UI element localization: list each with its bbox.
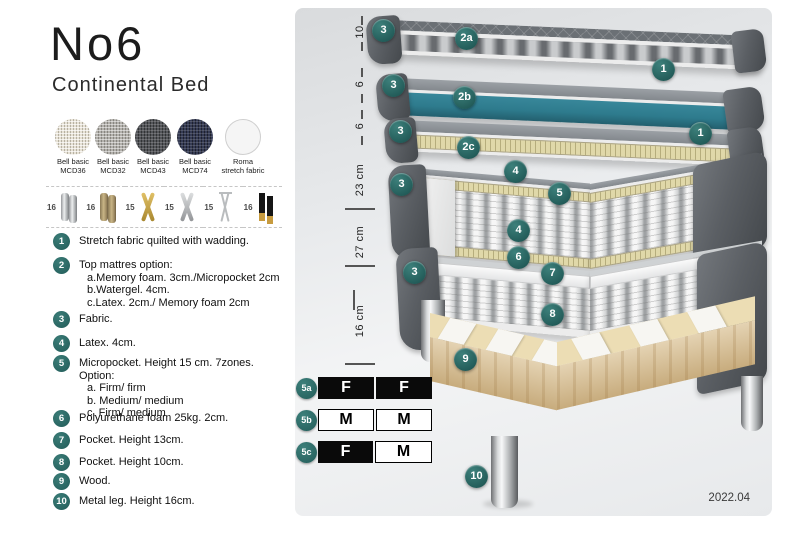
callout-5: 5: [548, 182, 571, 205]
ruler-line: [345, 208, 375, 210]
firmness-cell: M: [318, 409, 374, 431]
feature-item-10: 10 Metal leg. Height 16cm.: [53, 493, 291, 510]
callout-7: 7: [541, 262, 564, 285]
firmness-row-5c: F M: [318, 441, 432, 463]
exploded-bed-diagram: 10 6 6 23 cm 27 cm 16 cm: [295, 8, 772, 516]
feature-text: Stretch fabric quilted with wadding.: [79, 233, 249, 248]
product-subtitle: Continental Bed: [52, 74, 209, 97]
firmness-cell: M: [375, 441, 432, 463]
dimension-label-27cm: 27 cm: [354, 212, 366, 272]
feature-text: Pocket. Height 10cm.: [79, 454, 184, 469]
callout-3: 3: [372, 19, 395, 42]
leg-options-row: 16 16 15 15 15 16: [46, 186, 282, 228]
feature-number-badge: 8: [53, 454, 70, 471]
firmness-row-5a: F F: [318, 377, 432, 399]
callout-3: 3: [403, 261, 426, 284]
feature-number-badge: 2: [53, 257, 70, 274]
feature-number-badge: 6: [53, 410, 70, 427]
feature-number-badge: 9: [53, 473, 70, 490]
ruler-line: [345, 363, 375, 365]
firmness-cell: F: [376, 377, 432, 399]
callout-9: 9: [454, 348, 477, 371]
callout-4: 4: [507, 219, 530, 242]
callout-2b: 2b: [453, 86, 476, 109]
feature-text: Polyurethane foam 25kg. 2cm.: [79, 410, 228, 425]
feature-text: Fabric.: [79, 311, 113, 326]
feature-item-4: 4 Latex. 4cm.: [53, 335, 291, 352]
black-gold-tip-legs-icon: [255, 191, 277, 223]
leg-option-chrome: 16: [46, 186, 85, 228]
leg-option-gold-cross: 15: [125, 186, 164, 228]
feature-item-7: 7 Pocket. Height 13cm.: [53, 432, 291, 449]
dimension-label-16cm: 16 cm: [354, 291, 366, 351]
feature-text: Wood.: [79, 473, 111, 488]
feature-number-badge: 10: [53, 493, 70, 510]
feature-item-9: 9 Wood.: [53, 473, 291, 490]
firmness-badge-5c: 5c: [296, 442, 317, 463]
feature-number-badge: 4: [53, 335, 70, 352]
firmness-cell: F: [318, 377, 374, 399]
feature-number-badge: 1: [53, 233, 70, 250]
feature-number-badge: 5: [53, 355, 70, 372]
fabric-swatch-label: Bell basicMCD74: [169, 158, 221, 175]
silver-cross-legs-icon: [176, 191, 198, 223]
fabric-swatch-label: Romastretch fabric: [217, 158, 269, 175]
dimension-label-23cm: 23 cm: [354, 150, 366, 210]
ruler-tick: [361, 136, 363, 145]
layer-2a-right-cap: [731, 28, 768, 74]
callout-4: 4: [504, 160, 527, 183]
fabric-swatch-disc: [95, 119, 131, 155]
gold-cross-legs-icon: [137, 191, 159, 223]
version-label: 2022.04: [708, 492, 750, 504]
fabric-swatch-disc: [135, 119, 171, 155]
fabric-swatch: Bell basicMCD74: [169, 119, 221, 175]
firmness-badge-5a: 5a: [296, 378, 317, 399]
callout-3: 3: [389, 120, 412, 143]
feature-text: Pocket. Height 13cm.: [79, 432, 184, 447]
info-panel: No6 Continental Bed Bell basicMCD36 Bell…: [0, 0, 295, 533]
leg-option-hairpin: 15: [203, 186, 242, 228]
feature-number-badge: 3: [53, 311, 70, 328]
leg-option-silver-cross: 15: [164, 186, 203, 228]
callout-2c: 2c: [457, 136, 480, 159]
feature-text: Metal leg. Height 16cm.: [79, 493, 195, 508]
wood-cylinder-legs-icon: [97, 191, 119, 223]
ruler-line: [345, 265, 375, 267]
fabric-swatch-disc: [55, 119, 91, 155]
firmness-row-5b: M M: [318, 409, 432, 431]
hairpin-legs-icon: [215, 191, 237, 223]
feature-item-8: 8 Pocket. Height 10cm.: [53, 454, 291, 471]
leg-option-wood: 16: [85, 186, 124, 228]
callout-8: 8: [541, 303, 564, 326]
callout-1: 1: [652, 58, 675, 81]
feature-item-3: 3 Fabric.: [53, 311, 291, 328]
callout-3: 3: [390, 173, 413, 196]
chrome-cylinder-legs-icon: [58, 191, 80, 223]
callout-2a: 2a: [455, 27, 478, 50]
fabric-swatch-disc: [225, 119, 261, 155]
layer-top-mattress-2a: [390, 20, 760, 70]
feature-number-badge: 7: [53, 432, 70, 449]
firmness-cell: F: [318, 441, 373, 463]
product-title: No6: [50, 16, 145, 71]
callout-6: 6: [507, 246, 530, 269]
feature-text: Latex. 4cm.: [79, 335, 136, 350]
callout-10: 10: [465, 465, 488, 488]
feature-text: Top mattres option: a.Memory foam. 3cm./…: [79, 257, 280, 309]
fabric-swatch-disc: [177, 119, 213, 155]
firmness-badge-5b: 5b: [296, 410, 317, 431]
metal-leg-front: [491, 436, 518, 508]
firmness-cell: M: [376, 409, 432, 431]
fabric-swatch: Romastretch fabric: [217, 119, 269, 175]
feature-item-1: 1 Stretch fabric quilted with wadding.: [53, 233, 291, 250]
leg-option-black: 16: [243, 186, 282, 228]
callout-1: 1: [689, 122, 712, 145]
metal-leg-right: [741, 376, 763, 431]
feature-item-6: 6 Polyurethane foam 25kg. 2cm.: [53, 410, 291, 427]
callout-3: 3: [382, 74, 405, 97]
ruler-tick: [361, 42, 363, 51]
dimension-label-6b: 6: [354, 96, 366, 156]
feature-item-2: 2 Top mattres option: a.Memory foam. 3cm…: [53, 257, 291, 309]
